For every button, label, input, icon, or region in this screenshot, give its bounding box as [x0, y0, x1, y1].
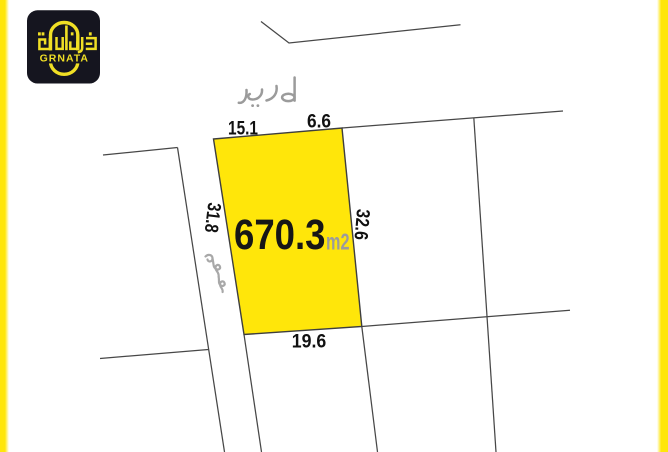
svg-text:15.1: 15.1	[228, 119, 258, 140]
svg-text:670.3: 670.3	[234, 211, 326, 259]
svg-text:GRNATA: GRNATA	[40, 53, 89, 65]
svg-text:31.8: 31.8	[200, 201, 224, 233]
svg-text:m2: m2	[326, 228, 350, 254]
svg-text:32.6: 32.6	[349, 208, 373, 241]
svg-text:19.6: 19.6	[292, 332, 327, 353]
svg-text:6.6: 6.6	[307, 112, 331, 133]
